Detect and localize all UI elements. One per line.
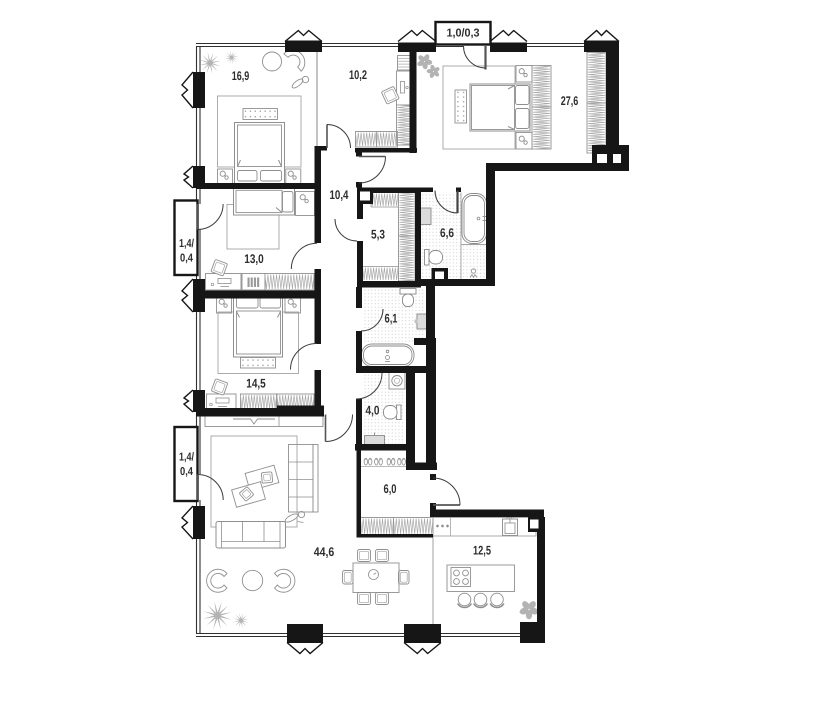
svg-text:6,0: 6,0	[384, 482, 397, 496]
svg-text:27,6: 27,6	[561, 94, 579, 108]
svg-text:10,2: 10,2	[349, 68, 367, 82]
svg-text:1,0/0,3: 1,0/0,3	[447, 28, 480, 40]
svg-text:0,4: 0,4	[180, 466, 193, 478]
svg-text:13,0: 13,0	[244, 252, 264, 266]
svg-text:14,5: 14,5	[246, 377, 266, 391]
svg-text:0,4: 0,4	[180, 253, 193, 265]
svg-text:16,9: 16,9	[232, 69, 250, 83]
svg-text:5,3: 5,3	[371, 228, 385, 242]
svg-text:44,6: 44,6	[314, 545, 335, 559]
svg-text:6,1: 6,1	[385, 312, 398, 326]
svg-text:1,4/: 1,4/	[179, 452, 195, 464]
svg-text:4,0: 4,0	[366, 404, 380, 418]
svg-text:10,4: 10,4	[330, 188, 349, 202]
svg-text:1,4/: 1,4/	[179, 238, 195, 250]
svg-text:12,5: 12,5	[473, 544, 491, 558]
svg-text:6,6: 6,6	[440, 226, 454, 240]
